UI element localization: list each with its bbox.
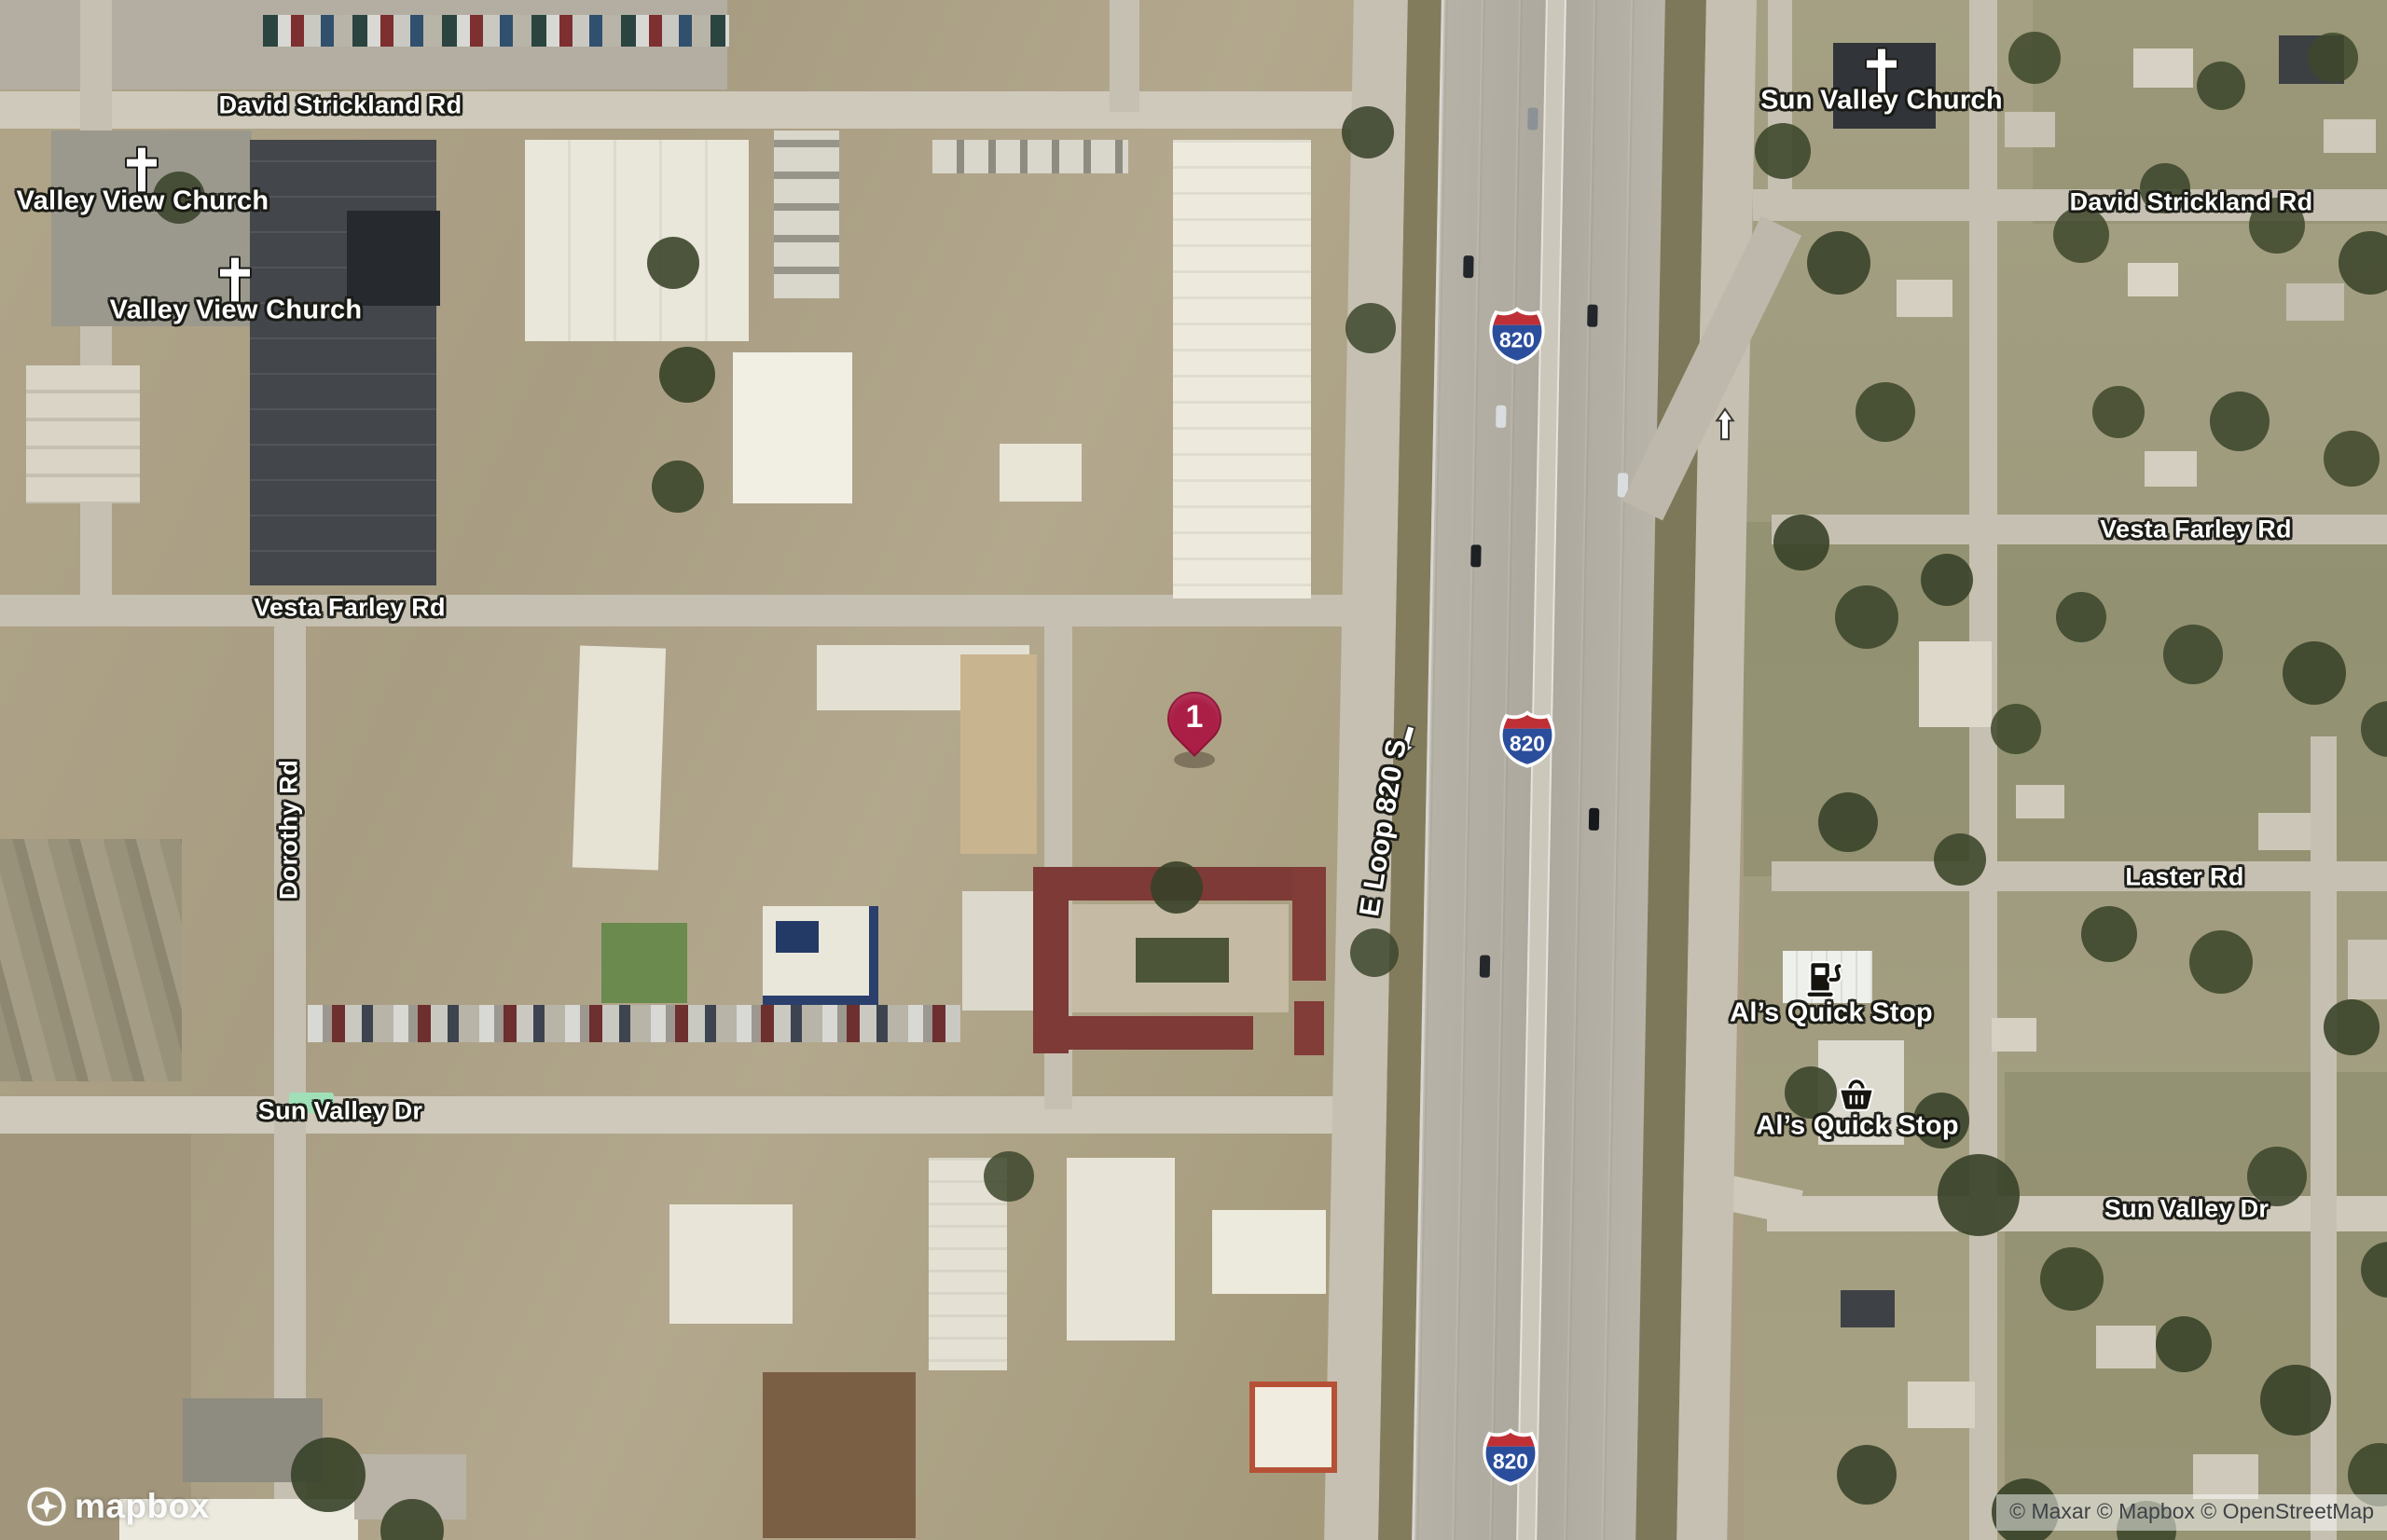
shield-number: 820 xyxy=(1499,328,1535,352)
parked-car-row xyxy=(308,1005,960,1042)
road-label-laster: Laster Rd xyxy=(2125,863,2243,892)
building xyxy=(1249,1382,1337,1473)
road-vertical-stub xyxy=(1110,0,1139,112)
building xyxy=(929,1158,1007,1370)
house-roof xyxy=(2324,119,2376,153)
map-attribution[interactable]: © Maxar © Mapbox © OpenStreetMap xyxy=(1996,1494,2387,1531)
church-cross-icon xyxy=(123,145,160,194)
road-sun-valley-west xyxy=(0,1096,1403,1134)
house-roof xyxy=(2096,1326,2156,1368)
trailer-yard xyxy=(932,140,1128,173)
vehicle xyxy=(1527,107,1538,130)
road-sun-valley-east xyxy=(1767,1196,2387,1231)
house-roof xyxy=(2286,283,2344,321)
church-cross-icon xyxy=(216,255,254,304)
building xyxy=(354,1454,466,1519)
road-label-vesta-farley-west: Vesta Farley Rd xyxy=(254,594,446,623)
house-roof xyxy=(1992,1018,2036,1052)
parked-car-row xyxy=(263,15,729,47)
building xyxy=(183,1398,323,1482)
road-label-vesta-farley-east: Vesta Farley Rd xyxy=(2100,516,2292,544)
highlighted-building-segment xyxy=(1292,867,1326,981)
road-label-sun-valley-east: Sun Valley Dr xyxy=(2104,1195,2269,1224)
shield-number: 820 xyxy=(1493,1450,1528,1474)
lawn-patch xyxy=(601,923,687,1003)
house-roof xyxy=(2279,35,2344,84)
house-roof xyxy=(1841,1290,1895,1327)
building xyxy=(960,654,1037,854)
trailer-yard xyxy=(774,131,839,298)
shield-number: 820 xyxy=(1510,732,1545,756)
storage-units xyxy=(26,365,140,503)
interstate-820-shield: 820 xyxy=(1495,708,1560,770)
house-roof xyxy=(2145,451,2197,487)
building xyxy=(1000,444,1082,502)
house-roof xyxy=(2193,1454,2258,1499)
building-with-solar xyxy=(763,906,878,1005)
building xyxy=(763,1372,916,1538)
house-roof xyxy=(2016,785,2064,818)
building xyxy=(962,891,1042,1011)
building xyxy=(1212,1210,1326,1294)
vehicle xyxy=(1480,956,1490,978)
warehouse xyxy=(1173,140,1311,598)
interstate-820-shield: 820 xyxy=(1478,1426,1543,1488)
warehouse xyxy=(525,140,749,341)
vehicle xyxy=(1587,305,1597,327)
poi-label-als-quick-stop-fuel: Al’s Quick Stop xyxy=(1730,998,1933,1029)
road-residential-vertical xyxy=(1969,0,1997,1540)
pin-number: 1 xyxy=(1167,690,1221,744)
house-roof xyxy=(2133,48,2193,88)
road-label-david-strickland-west: David Strickland Rd xyxy=(219,91,462,120)
poi-label-als-quick-stop-store: Al’s Quick Stop xyxy=(1756,1111,1959,1142)
vehicle xyxy=(1496,406,1506,428)
road-label-sun-valley-west: Sun Valley Dr xyxy=(258,1097,422,1126)
warehouse xyxy=(573,645,666,870)
highlighted-building-segment xyxy=(1294,1001,1324,1055)
church-parking-lot xyxy=(250,140,436,585)
house-roof xyxy=(2258,813,2311,850)
mapbox-logo-text: mapbox xyxy=(75,1487,210,1526)
dirt-yard xyxy=(0,839,182,1081)
road-david-strickland-west xyxy=(0,91,1399,129)
interstate-820-shield: 820 xyxy=(1484,305,1550,366)
church-cross-icon xyxy=(1863,47,1900,95)
one-way-arrow-icon xyxy=(1711,406,1739,442)
satellite-map[interactable]: 820 820 820 David Strickland Rd Vesta Fa… xyxy=(0,0,2387,1540)
vehicle xyxy=(1589,808,1599,831)
fuel-pump-icon xyxy=(1806,958,1849,999)
mapbox-logo[interactable]: mapbox xyxy=(26,1486,210,1527)
shopping-basket-icon xyxy=(1835,1075,1878,1114)
warehouse xyxy=(733,352,852,503)
house-roof xyxy=(2128,263,2178,296)
highlighted-building-segment xyxy=(1052,1016,1253,1050)
house-roof xyxy=(2348,940,2387,999)
road-label-dorothy: Dorothy Rd xyxy=(275,760,304,900)
vehicle xyxy=(1470,544,1481,567)
building xyxy=(669,1204,793,1324)
road-residential-vertical xyxy=(2311,736,2337,1540)
freeway-lanes xyxy=(1411,0,1671,1540)
house-roof xyxy=(1919,641,1992,727)
courtyard-hedge xyxy=(1136,938,1229,983)
dirt-yard xyxy=(0,1109,191,1540)
road-laster xyxy=(1772,861,2387,891)
vehicle xyxy=(1463,255,1473,278)
road-vesta-farley-east xyxy=(1772,515,2387,544)
freeway-median xyxy=(1515,0,1566,1540)
house-roof xyxy=(2005,112,2055,147)
house-roof xyxy=(1897,280,1952,317)
highlighted-building-segment xyxy=(1033,867,1326,901)
building xyxy=(347,211,440,306)
road-vesta-farley-west xyxy=(0,595,1371,626)
house-roof xyxy=(1908,1382,1975,1428)
building xyxy=(1067,1158,1175,1341)
road-label-david-strickland-east: David Strickland Rd xyxy=(2070,188,2313,217)
mapbox-logo-icon xyxy=(26,1486,67,1527)
tree-cluster xyxy=(0,0,41,41)
